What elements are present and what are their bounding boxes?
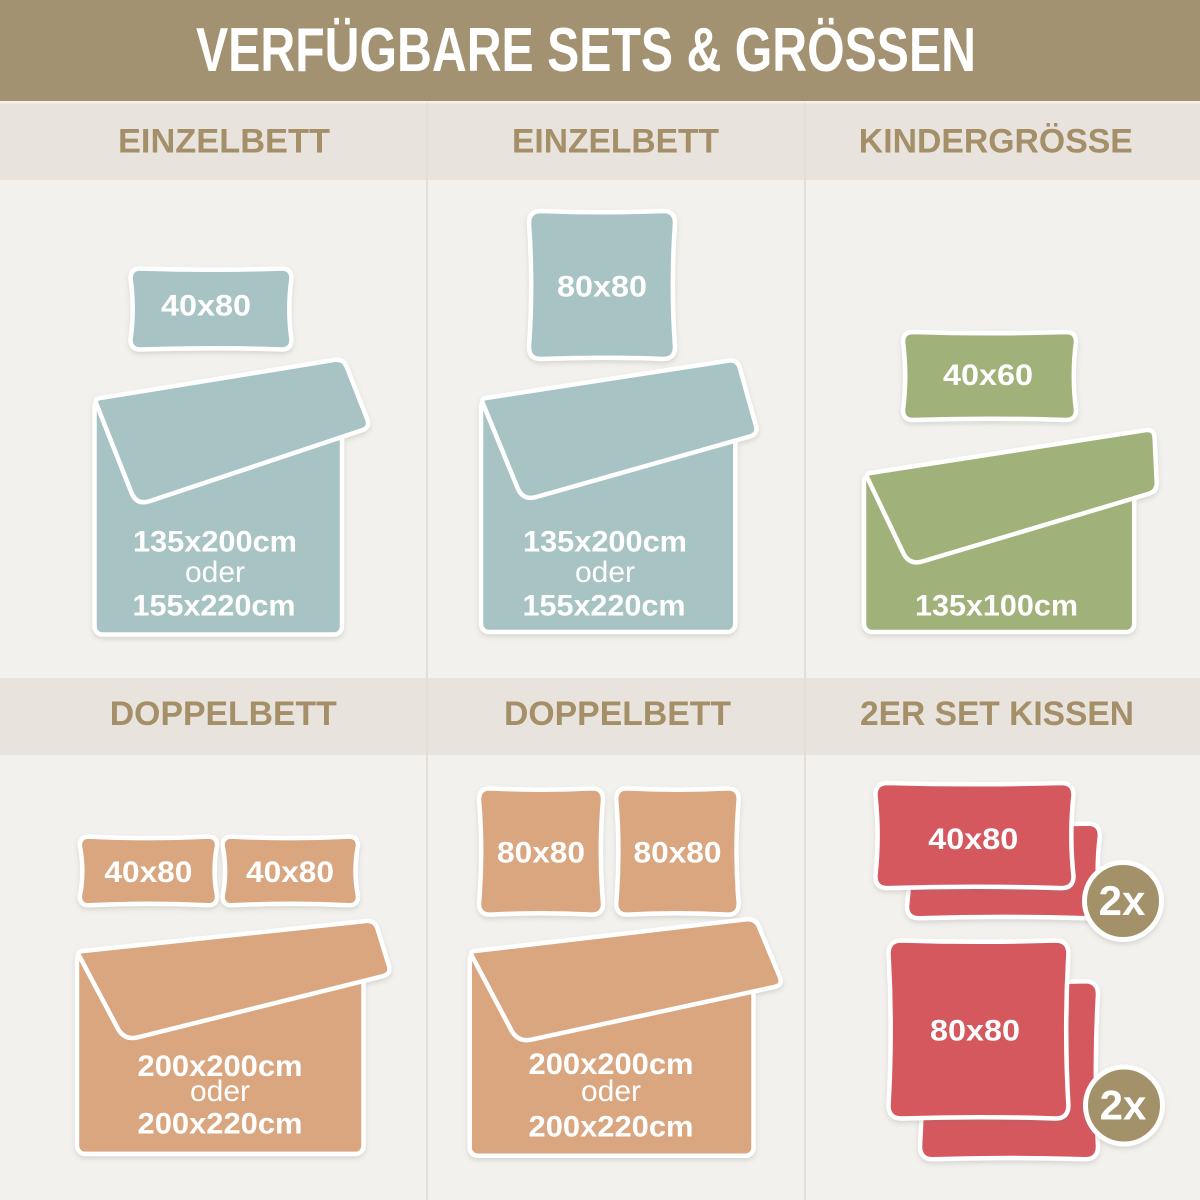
svg-text:oder: oder <box>190 1075 250 1108</box>
svg-text:oder: oder <box>185 556 245 589</box>
svg-text:80x80: 80x80 <box>557 271 647 304</box>
svg-text:40x80: 40x80 <box>928 823 1018 856</box>
svg-text:155x220cm: 155x220cm <box>523 589 686 622</box>
svg-text:80x80: 80x80 <box>634 836 722 869</box>
svg-text:oder: oder <box>581 1075 641 1108</box>
svg-text:135x100cm: 135x100cm <box>915 589 1078 622</box>
svg-text:2x: 2x <box>1099 877 1146 924</box>
svg-text:2x: 2x <box>1100 1081 1147 1128</box>
svg-text:VERFÜGBARE SETS & GRÖSSEN: VERFÜGBARE SETS & GRÖSSEN <box>196 16 976 85</box>
svg-text:135x200cm: 135x200cm <box>133 525 297 558</box>
svg-text:2ER SET KISSEN: 2ER SET KISSEN <box>860 695 1134 733</box>
svg-text:oder: oder <box>575 556 635 589</box>
svg-text:40x80: 40x80 <box>104 856 192 889</box>
svg-text:DOPPELBETT: DOPPELBETT <box>110 695 337 733</box>
svg-text:40x80: 40x80 <box>161 289 251 322</box>
svg-text:40x80: 40x80 <box>246 856 334 889</box>
svg-text:DOPPELBETT: DOPPELBETT <box>504 695 731 733</box>
svg-text:EINZELBETT: EINZELBETT <box>118 123 330 161</box>
svg-text:40x60: 40x60 <box>943 359 1033 392</box>
svg-text:200x220cm: 200x220cm <box>138 1108 303 1141</box>
svg-text:EINZELBETT: EINZELBETT <box>512 123 719 161</box>
svg-text:155x220cm: 155x220cm <box>133 589 296 622</box>
svg-text:80x80: 80x80 <box>930 1014 1020 1047</box>
svg-text:200x220cm: 200x220cm <box>529 1111 694 1144</box>
svg-text:80x80: 80x80 <box>497 836 585 869</box>
svg-text:135x200cm: 135x200cm <box>523 525 687 558</box>
svg-text:KINDERGRÖSSE: KINDERGRÖSSE <box>859 123 1133 161</box>
